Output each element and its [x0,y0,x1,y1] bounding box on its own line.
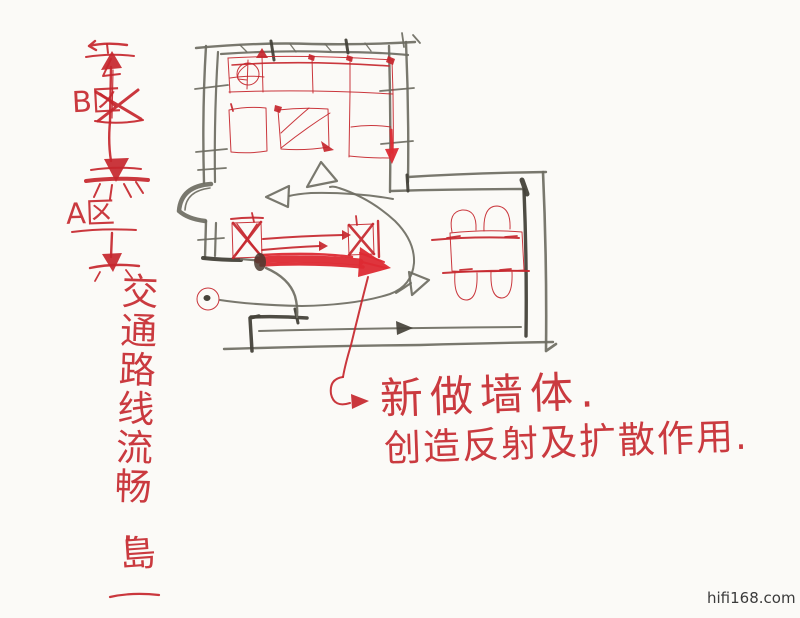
dining-chair-bottom-left [455,272,477,300]
listening-position [197,288,219,310]
wall-note-line1: 新做墙体. [379,370,601,423]
right-wall-outer [543,172,556,351]
connect-line-lower-arrow-icon [319,241,328,251]
leader-arrowhead-icon [351,394,369,409]
flow-bottom-arrowhead-icon [396,321,413,335]
top-wall-outer [196,42,415,48]
connect-line-upper [263,235,343,239]
left-wall-lower-tick [198,238,224,240]
top-right-corner-marks [402,33,420,47]
left-wall-inner [215,52,218,182]
armchair-square [229,107,267,152]
speaker-connect-lines [262,230,351,251]
flow-arrow-left-icon [266,186,289,207]
left-wall-ticks [195,85,228,170]
sofa-bottom-edge [229,91,393,94]
zone-b-underline [95,120,143,123]
speaker-box-left [231,213,263,258]
sofa-l-shaped [228,48,399,164]
zone-shaft-2 [109,122,111,161]
route-note-vertical: 交通路线流畅. [107,271,156,551]
flow-arrow-up-icon [307,162,337,187]
right-section-top-wall-outer [408,172,546,177]
bottom-left-bracket [250,316,259,351]
speaker-right-side-stroke [378,221,379,257]
floor-plan-walls [179,33,556,351]
top-wall-inner [221,51,408,55]
zone-top-tick [107,44,108,53]
upper-right-wall-inner [389,46,390,192]
signature-underline [110,594,159,597]
dining-table-group [432,206,529,300]
connect-line-upper-arrow-icon [342,230,351,240]
right-section-wall-joint [407,175,408,191]
leader-hook [331,377,350,404]
new-wall-stroke-main [258,259,360,262]
dining-chair-top-right [484,206,510,231]
signature: 島 [119,535,158,575]
zone-a-label: A区 [65,197,115,229]
dining-chair-top-left [451,210,476,232]
speaker-left-tick [252,213,254,222]
flow-right-tail [396,283,411,293]
dining-chair-ticks [447,236,517,270]
speaker-right-tick [356,216,357,225]
coffee-table-square [274,105,334,152]
new-wall-stroke-2 [261,264,363,267]
flow-bottom-line [259,327,521,331]
leader-curve [343,277,368,377]
sofa-left-edge [228,58,230,93]
zone-bottom-arrow-icon [102,253,122,272]
bottom-wall [224,342,553,349]
scanned-floor-plan-sketch: B区 A区 交通路线流畅. 島 新做墙体. 创造反射及扩散作用. hifi168… [0,0,800,618]
sofa-down-arrow-icon [385,148,399,164]
zone-b-label: B区 [71,85,121,118]
watermark: hifi168.com [707,589,796,607]
door-swing [179,184,211,221]
sofa-column-bottom [349,156,389,158]
leader-arrow-to-note [331,277,369,409]
bottom-left-wall-top [251,317,307,318]
right-wall-inner [524,190,526,336]
coffee-table-diagonals [281,108,330,148]
zone-shaft-3 [111,233,112,257]
dining-chair-bottom-right [491,272,512,298]
mid-wall-stub-curve [266,268,297,317]
upper-right-wall-outer [406,42,408,182]
coffee-table-corner-arrow-icon [321,141,334,152]
sofa-column-divider [351,126,391,128]
dining-table-ext-lines [432,237,529,273]
listening-position-dot [204,295,211,301]
zone-down-bar-thick [86,179,148,181]
coffee-table-corner-dot [274,105,282,113]
left-wall-outer [203,46,206,183]
connect-line-lower [262,246,320,250]
speaker-left-top-line [231,218,263,219]
sofa-dividers [262,56,350,93]
new-wall-left-blob [254,253,266,271]
sofa-column-left-edge [349,93,350,157]
right-section-top-wall-inner [391,189,524,191]
flow-left-tail [289,193,393,199]
zone-direction-diagram [72,41,148,281]
